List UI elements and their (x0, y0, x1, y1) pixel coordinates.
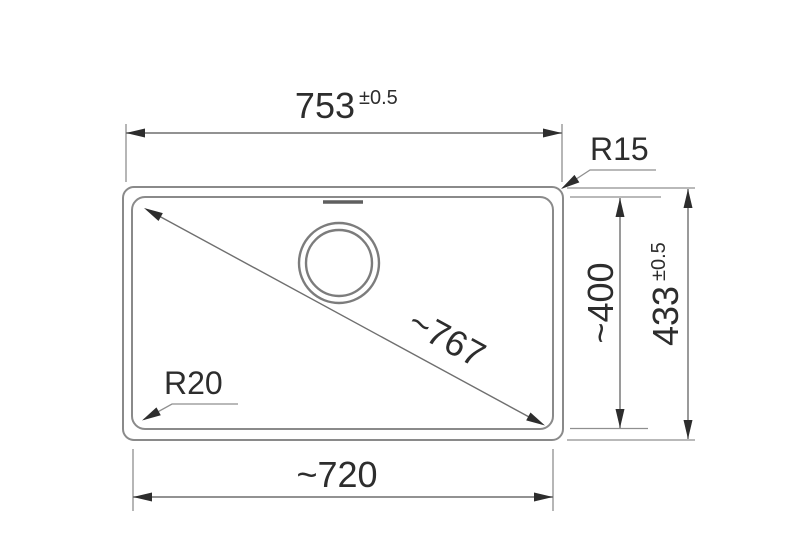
diagonal-arrow-end-icon (526, 412, 547, 429)
diagonal-arrow-start-icon (142, 204, 163, 221)
bottom-width-label: ~720 (296, 454, 377, 495)
inner-radius-arrow-icon (140, 407, 161, 424)
top-width-label: 753 (295, 85, 355, 126)
diagonal-dimension-label: ~767 (402, 301, 493, 376)
inner-height-arrow-up-icon (616, 198, 625, 217)
outer-height-arrow-up-icon (684, 189, 693, 208)
drain-outer-circle (299, 223, 379, 303)
outer-height-label: 433 (645, 286, 686, 346)
top-dim-arrow-right-icon (543, 129, 562, 138)
basin-outer-outline (123, 187, 563, 440)
inner-height-arrow-down-icon (616, 409, 625, 428)
inner-corner-radius-label: R20 (164, 365, 223, 401)
bottom-dim-arrow-left-icon (133, 493, 152, 502)
top-dim-arrow-left-icon (126, 129, 145, 138)
outer-corner-radius-label: R15 (590, 131, 649, 167)
outer-height-arrow-down-icon (684, 420, 693, 439)
bottom-dim-arrow-right-icon (534, 493, 553, 502)
inner-height-label: ~400 (580, 262, 621, 343)
technical-drawing-canvas: ~767 753 ±0.5 ~720 ~400 433 ±0.5 (0, 0, 800, 544)
top-width-tolerance-label: ±0.5 (359, 87, 398, 109)
sink-dimension-drawing: ~767 753 ±0.5 ~720 ~400 433 ±0.5 (0, 0, 800, 544)
outer-height-tolerance-label: ±0.5 (648, 242, 670, 281)
drain-inner-circle (306, 230, 372, 296)
